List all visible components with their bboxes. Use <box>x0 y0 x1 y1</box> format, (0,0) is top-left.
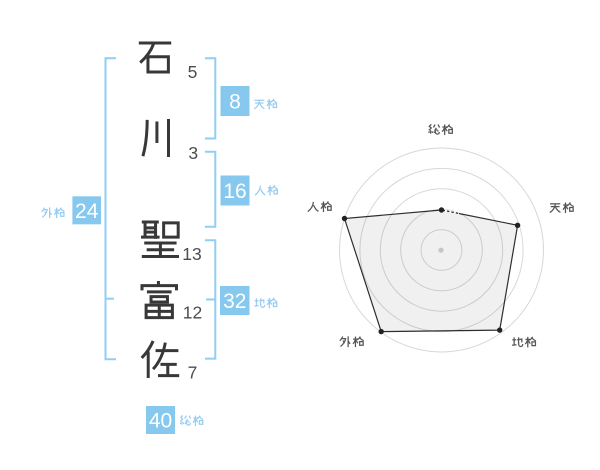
svg-text:5: 5 <box>188 62 198 82</box>
svg-text:16: 16 <box>223 180 246 203</box>
svg-text:13: 13 <box>182 244 201 264</box>
svg-text:32: 32 <box>223 290 246 313</box>
svg-text:7: 7 <box>188 363 198 383</box>
svg-text:8: 8 <box>229 91 241 114</box>
svg-text:24: 24 <box>75 200 99 223</box>
svg-text:40: 40 <box>149 410 172 433</box>
svg-text:12: 12 <box>183 303 202 323</box>
svg-text:3: 3 <box>188 143 198 163</box>
